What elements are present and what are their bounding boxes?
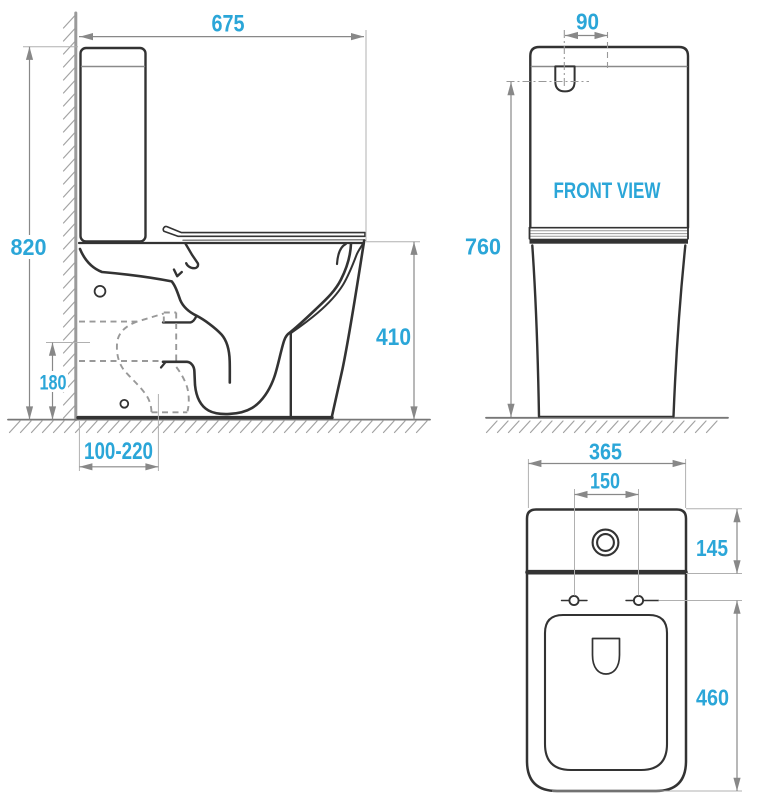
svg-text:460: 460 — [696, 685, 729, 711]
svg-text:145: 145 — [696, 535, 728, 561]
svg-text:675: 675 — [212, 11, 245, 38]
svg-text:150: 150 — [590, 469, 620, 494]
svg-text:760: 760 — [465, 234, 501, 260]
svg-text:180: 180 — [40, 372, 67, 395]
svg-text:90: 90 — [576, 9, 599, 35]
svg-text:410: 410 — [376, 324, 411, 351]
svg-text:FRONT VIEW: FRONT VIEW — [554, 178, 662, 203]
svg-text:100-220: 100-220 — [84, 438, 153, 465]
svg-text:365: 365 — [589, 439, 622, 465]
svg-text:820: 820 — [11, 234, 47, 260]
